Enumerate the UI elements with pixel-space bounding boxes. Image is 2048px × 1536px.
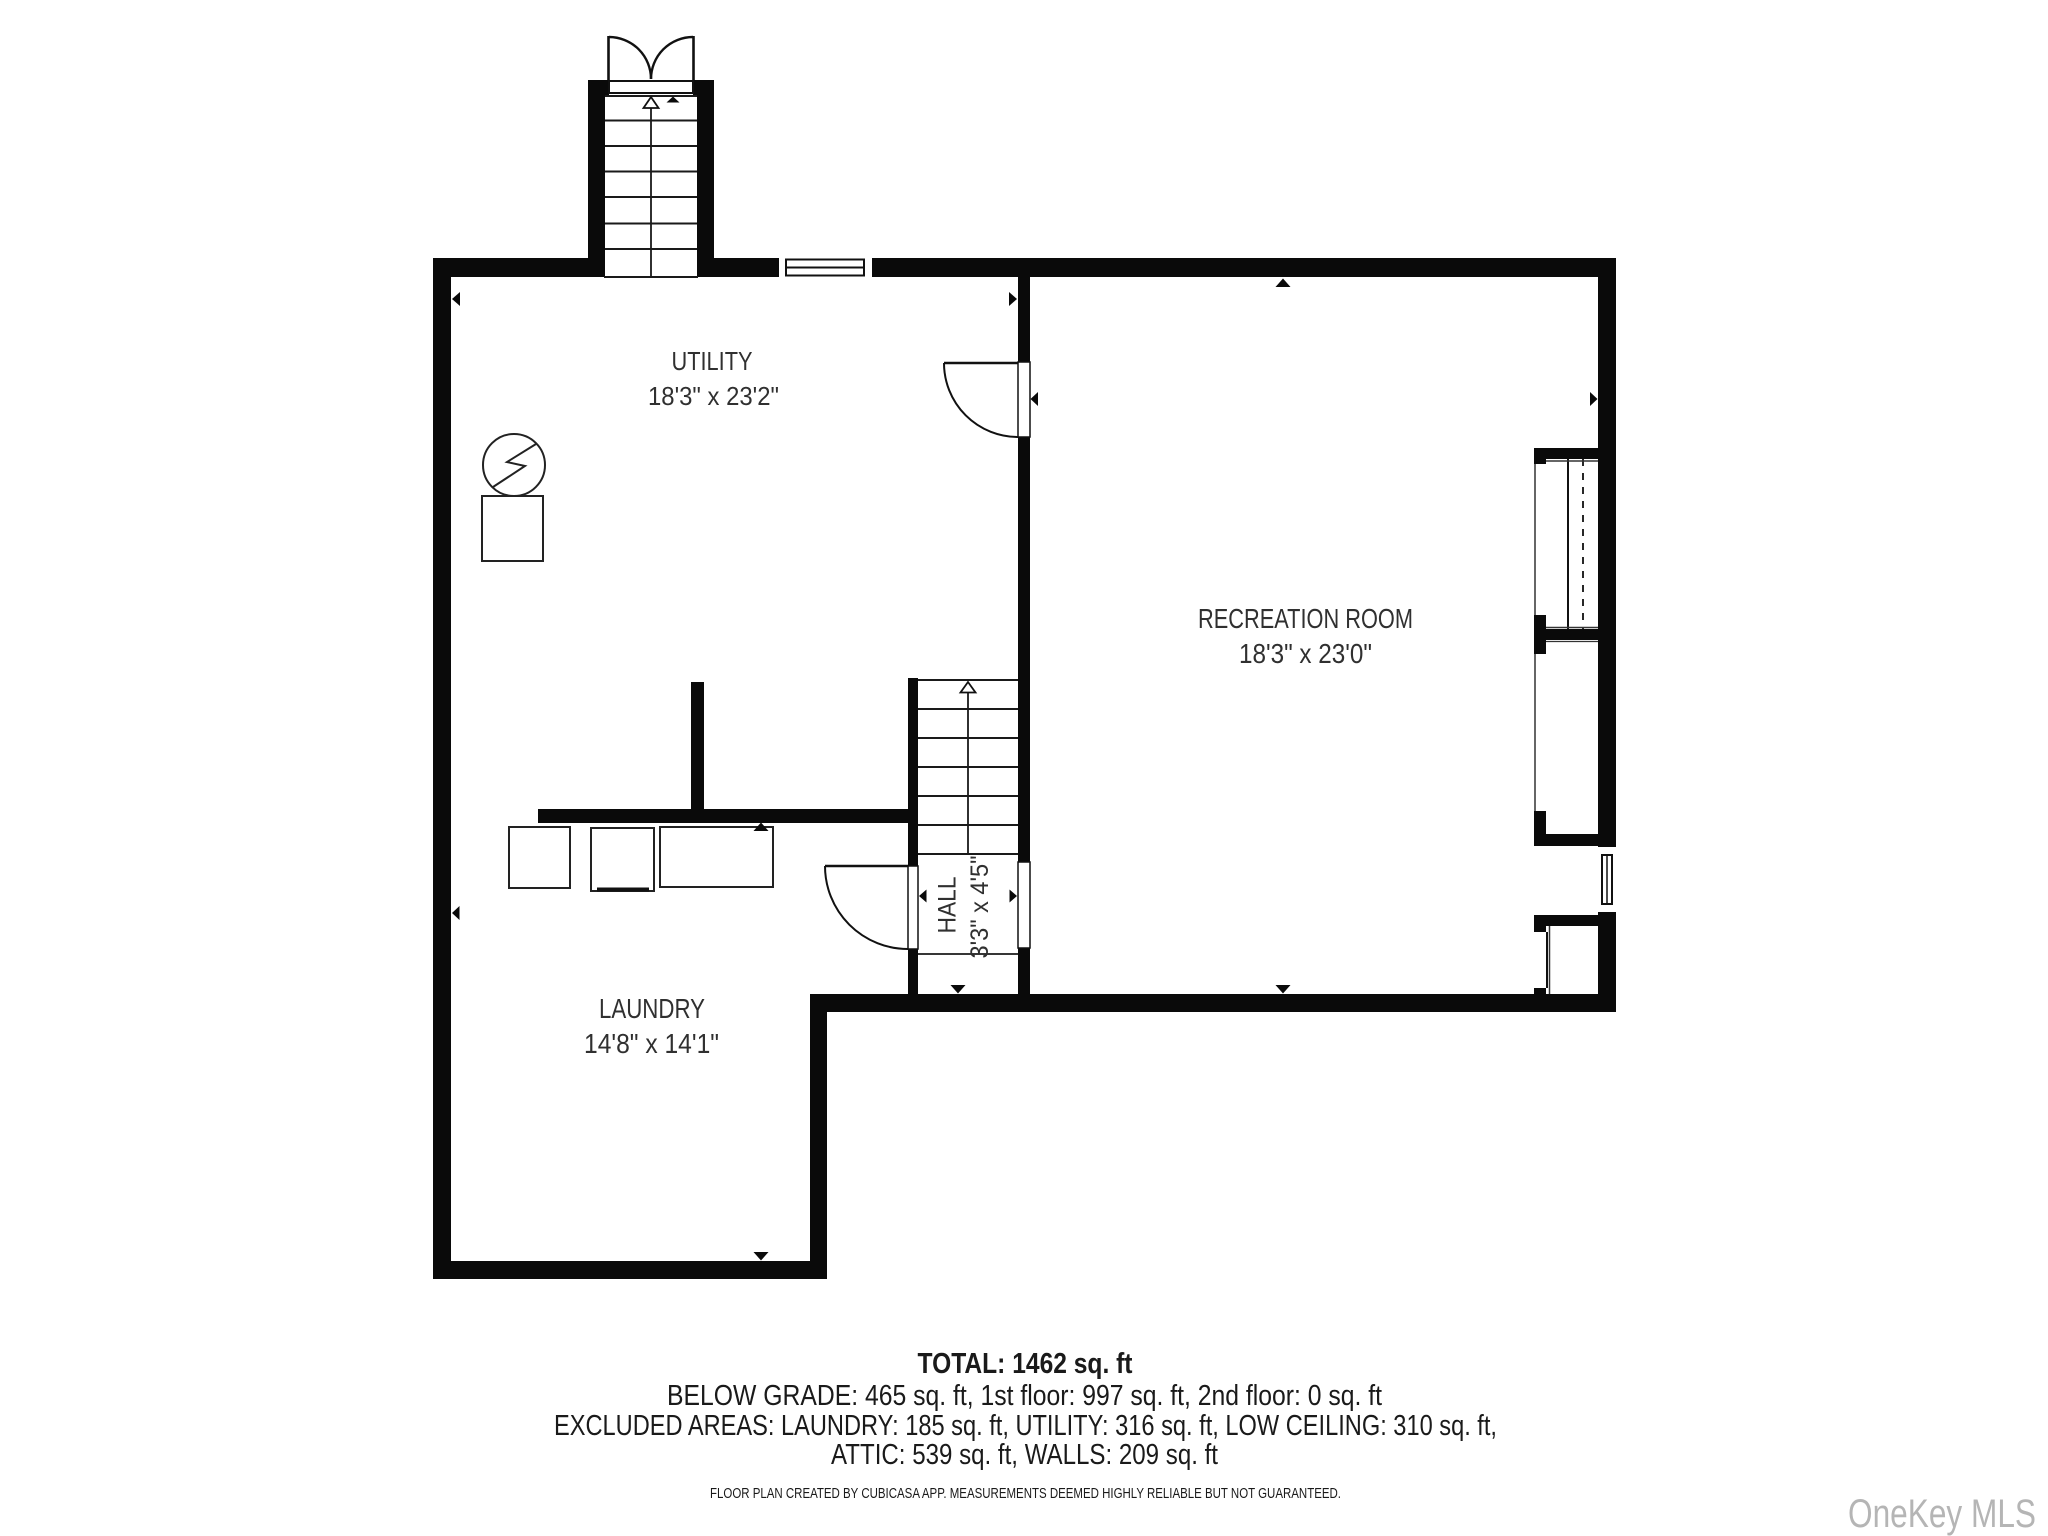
svg-text:EXCLUDED AREAS: LAUNDRY: 185 s: EXCLUDED AREAS: LAUNDRY: 185 sq. ft, UTI… xyxy=(554,1410,1497,1442)
svg-text:ATTIC: 539 sq. ft, WALLS: 209: ATTIC: 539 sq. ft, WALLS: 209 sq. ft xyxy=(831,1439,1218,1471)
svg-text:RECREATION ROOM: RECREATION ROOM xyxy=(1198,603,1413,634)
svg-text:OneKey MLS: OneKey MLS xyxy=(1848,1492,2036,1536)
svg-text:18'3" x 23'0": 18'3" x 23'0" xyxy=(1239,638,1372,669)
svg-text:HALL: HALL xyxy=(934,876,962,933)
svg-text:14'8" x 14'1": 14'8" x 14'1" xyxy=(584,1028,719,1059)
svg-text:3'3" x 4'5": 3'3" x 4'5" xyxy=(966,856,994,959)
svg-text:LAUNDRY: LAUNDRY xyxy=(599,993,705,1024)
svg-text:FLOOR PLAN CREATED BY CUBICASA: FLOOR PLAN CREATED BY CUBICASA APP. MEAS… xyxy=(710,1486,1341,1502)
svg-text:18'3" x 23'2": 18'3" x 23'2" xyxy=(648,381,779,411)
svg-text:TOTAL: 1462 sq. ft: TOTAL: 1462 sq. ft xyxy=(918,1348,1133,1380)
svg-text:UTILITY: UTILITY xyxy=(672,346,753,376)
svg-text:BELOW GRADE: 465 sq. ft, 1st f: BELOW GRADE: 465 sq. ft, 1st floor: 997 … xyxy=(667,1380,1382,1412)
